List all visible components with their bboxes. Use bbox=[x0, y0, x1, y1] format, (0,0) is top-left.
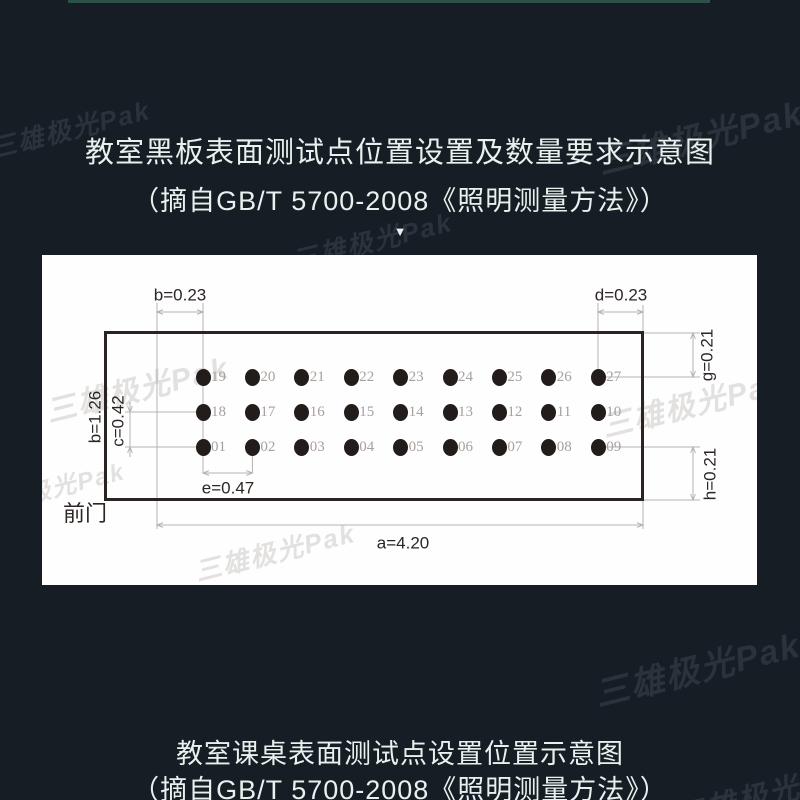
dim-label-b-top: b=0.23 bbox=[154, 286, 206, 305]
test-point-label: 13 bbox=[458, 403, 473, 421]
test-point bbox=[492, 439, 507, 456]
test-point bbox=[294, 369, 309, 386]
dim-label-c-left: c=0.42 bbox=[109, 395, 128, 447]
test-point-label: 01 bbox=[211, 438, 226, 456]
test-point bbox=[294, 439, 309, 456]
test-point bbox=[492, 404, 507, 421]
bottom-subtitle: （摘自GB/T 5700-2008《照明测量方法》） bbox=[0, 774, 800, 800]
page: 三雄极光Pak 三雄极光Pak 三雄极光Pak 三雄极光Pak 三雄极光Pak … bbox=[0, 0, 800, 800]
test-point-label: 16 bbox=[310, 403, 325, 421]
diagram-panel: 三雄极光Pak 三雄极光Pak 三雄极光Pak 三雄极光Pak bbox=[42, 255, 757, 585]
dim-label-g-right: g=0.21 bbox=[698, 329, 717, 381]
test-point bbox=[541, 369, 556, 386]
test-point-label: 19 bbox=[211, 368, 226, 386]
test-point bbox=[245, 404, 260, 421]
test-point-label: 23 bbox=[409, 368, 424, 386]
test-point bbox=[443, 439, 458, 456]
test-point-label: 25 bbox=[507, 368, 522, 386]
dim-label-e-bottom: e=0.47 bbox=[202, 479, 254, 498]
test-point bbox=[393, 439, 408, 456]
test-point-label: 10 bbox=[606, 403, 621, 421]
test-point bbox=[591, 404, 606, 421]
test-point bbox=[245, 369, 260, 386]
test-point-label: 03 bbox=[310, 438, 325, 456]
test-point bbox=[541, 404, 556, 421]
dim-label-a-bottom: a=4.20 bbox=[377, 534, 429, 553]
front-door-label: 前门 bbox=[63, 502, 107, 526]
down-arrow-icon: ▼ bbox=[0, 224, 800, 240]
test-point bbox=[591, 369, 606, 386]
test-point bbox=[344, 439, 359, 456]
test-point-label: 20 bbox=[260, 368, 275, 386]
test-point bbox=[245, 439, 260, 456]
test-point-label: 09 bbox=[606, 438, 621, 456]
test-point-label: 27 bbox=[606, 368, 621, 386]
test-point-label: 07 bbox=[507, 438, 522, 456]
dim-label-h-right: h=0.21 bbox=[701, 448, 720, 500]
test-point bbox=[294, 404, 309, 421]
test-point bbox=[393, 369, 408, 386]
top-accent-line bbox=[68, 0, 710, 3]
test-point bbox=[541, 439, 556, 456]
test-point bbox=[591, 439, 606, 456]
test-point-label: 11 bbox=[557, 403, 571, 421]
test-point-label: 05 bbox=[409, 438, 424, 456]
test-point-label: 12 bbox=[507, 403, 522, 421]
test-point bbox=[196, 404, 211, 421]
test-point-label: 14 bbox=[409, 403, 424, 421]
dim-label-b-left: b=1.26 bbox=[86, 391, 105, 443]
test-point-label: 15 bbox=[359, 403, 374, 421]
dim-label-d-top: d=0.23 bbox=[595, 286, 647, 305]
test-point bbox=[344, 369, 359, 386]
test-point-label: 02 bbox=[260, 438, 275, 456]
test-point bbox=[492, 369, 507, 386]
test-point-label: 26 bbox=[557, 368, 572, 386]
test-point bbox=[196, 369, 211, 386]
test-point bbox=[443, 369, 458, 386]
test-point-label: 06 bbox=[458, 438, 473, 456]
test-point bbox=[196, 439, 211, 456]
bottom-title: 教室课桌表面测试点设置位置示意图 bbox=[0, 738, 800, 770]
test-point-label: 18 bbox=[211, 403, 226, 421]
test-point-label: 21 bbox=[310, 368, 325, 386]
test-point-label: 17 bbox=[260, 403, 275, 421]
test-point-label: 08 bbox=[557, 438, 572, 456]
page-title: 教室黑板表面测试点位置设置及数量要求示意图 bbox=[0, 136, 800, 170]
test-point-label: 04 bbox=[359, 438, 374, 456]
test-point bbox=[344, 404, 359, 421]
test-point bbox=[443, 404, 458, 421]
test-point bbox=[393, 404, 408, 421]
page-subtitle: （摘自GB/T 5700-2008《照明测量方法》） bbox=[0, 184, 800, 218]
test-point-label: 22 bbox=[359, 368, 374, 386]
test-point-label: 24 bbox=[458, 368, 473, 386]
brand-watermark: 三雄极光Pak bbox=[589, 618, 800, 716]
